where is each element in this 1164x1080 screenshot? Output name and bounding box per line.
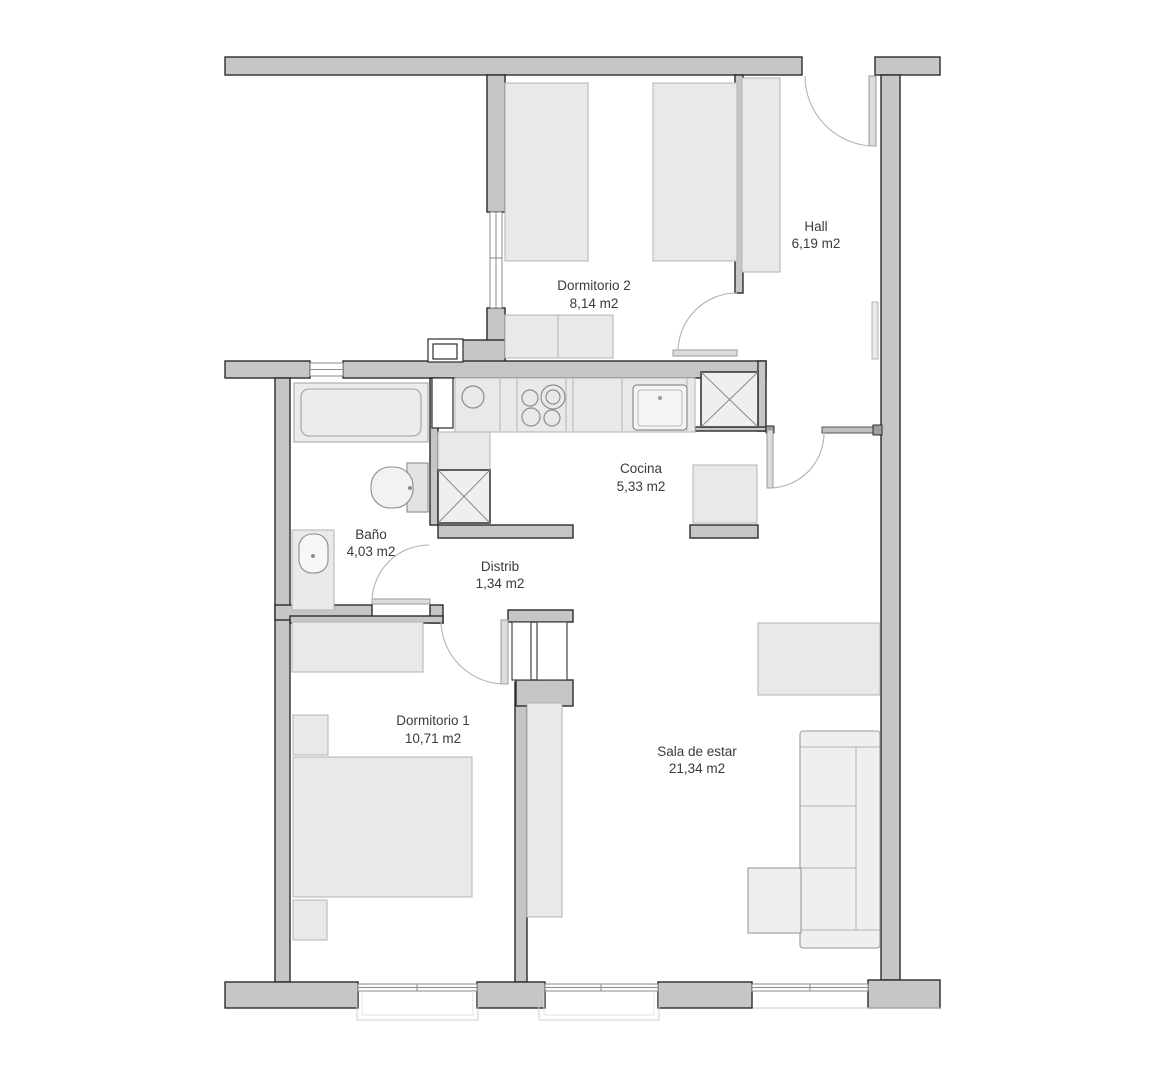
window-south-2 xyxy=(539,984,659,1020)
bathroom-fixtures xyxy=(292,383,428,610)
dorm1-furniture xyxy=(292,622,472,940)
shaft-cell-2 xyxy=(537,622,567,680)
shaft-cell-1 xyxy=(512,622,531,680)
duct-side-wall xyxy=(462,340,505,362)
dishwasher-icon xyxy=(633,385,687,430)
hall-closet xyxy=(742,78,780,272)
dorm1-area: 10,71 m2 xyxy=(405,731,461,746)
dorm2-bed-2 xyxy=(653,83,737,261)
dorm2-bed-1 xyxy=(505,83,588,261)
left-wall xyxy=(275,378,290,982)
dorm1-east-wall xyxy=(515,682,527,982)
dorm2-dresser xyxy=(505,315,613,358)
shaft-top-wall xyxy=(508,610,573,622)
bathtub-icon xyxy=(294,383,428,442)
dorm2-door xyxy=(673,293,737,356)
shaft-box-right-wall xyxy=(758,361,766,431)
dorm2-label: Dormitorio 2 xyxy=(557,278,631,293)
hall-radiator xyxy=(872,302,878,359)
window-south-1 xyxy=(357,984,478,1020)
sofa-ottoman xyxy=(748,868,801,933)
floor-plan-drawing: Hall 6,19 m2 Dormitorio 2 8,14 m2 Cocina… xyxy=(0,0,1164,1080)
kitchen-door-leaf xyxy=(432,378,453,428)
window-north xyxy=(310,363,343,376)
washing-machine-icon xyxy=(438,470,490,523)
dorm1-wardrobe xyxy=(292,622,423,672)
sala-label: Sala de estar xyxy=(657,744,737,759)
fridge-cabinet xyxy=(693,465,757,523)
dorm1-label: Dormitorio 1 xyxy=(396,713,470,728)
dorm2-area: 8,14 m2 xyxy=(570,296,619,311)
top-wall-east xyxy=(875,57,940,75)
hall-label: Hall xyxy=(804,219,827,234)
north-band-west xyxy=(225,361,310,378)
toilet-icon xyxy=(371,463,428,512)
hall-area: 6,19 m2 xyxy=(792,236,841,251)
kitchen-south-wall-east xyxy=(690,525,758,538)
top-wall-west xyxy=(225,57,802,75)
window-dorm2-west xyxy=(490,212,502,308)
cocina-area: 5,33 m2 xyxy=(617,479,666,494)
shaft-box-icon xyxy=(701,372,758,427)
shaft-bottom-wall xyxy=(516,680,573,706)
duct-box xyxy=(428,339,463,362)
south-wall-1 xyxy=(225,982,358,1008)
sala-tall-cabinet xyxy=(527,703,562,917)
distrib-area: 1,34 m2 xyxy=(476,576,525,591)
dorm1-nightstand-2 xyxy=(293,900,327,940)
right-wall xyxy=(881,75,900,980)
floor-plan-page: Hall 6,19 m2 Dormitorio 2 8,14 m2 Cocina… xyxy=(0,0,1164,1080)
sala-sideboard xyxy=(758,623,880,695)
dorm2-furniture xyxy=(505,83,737,358)
header-jamb-block xyxy=(873,425,882,435)
south-wall-2 xyxy=(477,982,545,1008)
south-wall-3 xyxy=(658,982,752,1008)
entrance-door xyxy=(805,76,876,146)
dorm1-door xyxy=(441,620,508,684)
kitchen-south-wall-west xyxy=(438,525,573,538)
kitchen-counter-return xyxy=(438,432,490,470)
hall-sala-header xyxy=(822,427,875,433)
bathroom-sink-icon xyxy=(292,530,334,610)
hall-sala-door xyxy=(767,430,824,488)
dorm1-bed xyxy=(293,757,472,897)
south-wall-4 xyxy=(868,980,940,1008)
distrib-label: Distrib xyxy=(481,559,519,574)
cocina-label: Cocina xyxy=(620,461,663,476)
dorm2-left-wall-upper xyxy=(487,75,505,212)
sala-furniture xyxy=(527,623,880,948)
sofa-icon xyxy=(800,731,880,948)
sala-area: 21,34 m2 xyxy=(669,761,725,776)
dorm1-nightstand-1 xyxy=(293,715,328,755)
bano-area: 4,03 m2 xyxy=(347,544,396,559)
bano-label: Baño xyxy=(355,527,387,542)
